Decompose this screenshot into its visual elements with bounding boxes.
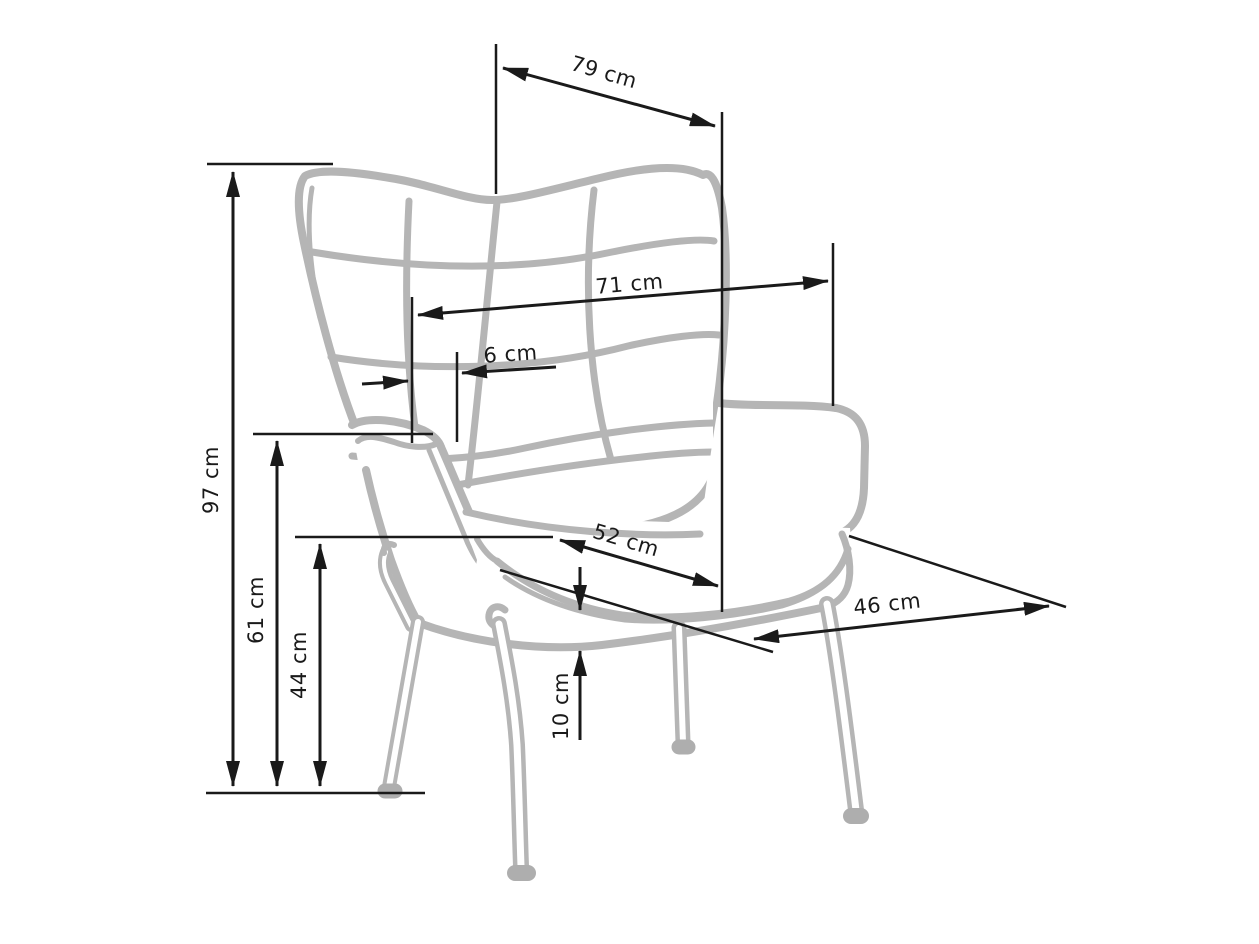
chair-right-armrest-top [719, 403, 836, 408]
label-overall-depth-top: 79 cm [568, 51, 640, 93]
chair-drawing [299, 168, 865, 873]
diagram-canvas: 79 cm 71 cm 6 cm 97 cm 61 cm 44 cm 52 cm… [0, 0, 1259, 944]
label-cushion-thickness: 10 cm [549, 672, 573, 740]
label-seat-height: 44 cm [287, 631, 311, 699]
label-wing-offset: 6 cm [483, 340, 539, 368]
chair-right-armrest [700, 402, 865, 534]
label-seat-depth: 46 cm [852, 588, 922, 619]
label-total-height: 97 cm [199, 446, 223, 514]
dimension-diagram: 79 cm 71 cm 6 cm 97 cm 61 cm 44 cm 52 cm… [0, 0, 1259, 944]
label-armrest-height: 61 cm [244, 576, 268, 644]
